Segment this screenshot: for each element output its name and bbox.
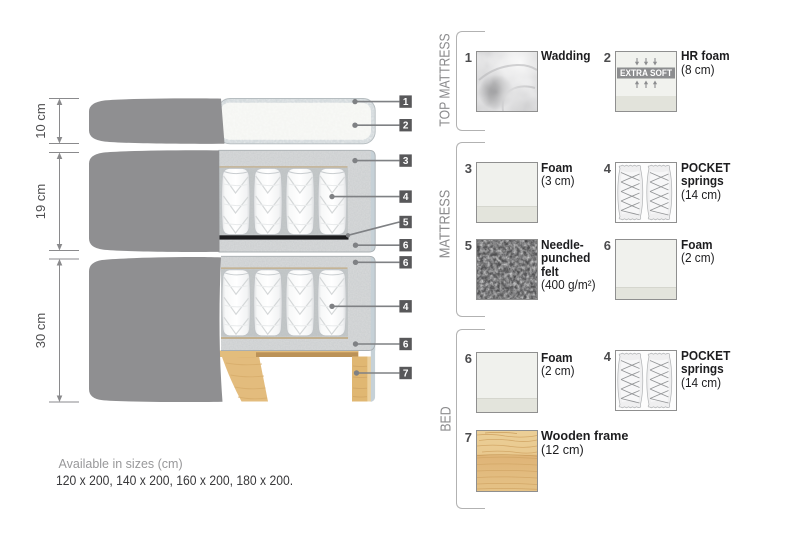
svg-text:6: 6 xyxy=(403,241,409,252)
svg-text:3: 3 xyxy=(403,156,409,167)
svg-text:4: 4 xyxy=(403,302,409,313)
svg-text:EXTRA SOFT: EXTRA SOFT xyxy=(620,68,672,78)
svg-text:10 cm: 10 cm xyxy=(33,103,48,138)
svg-text:6: 6 xyxy=(403,258,409,269)
svg-text:7: 7 xyxy=(403,369,409,380)
svg-text:4: 4 xyxy=(403,192,409,203)
svg-text:2: 2 xyxy=(403,121,409,132)
svg-text:19 cm: 19 cm xyxy=(33,184,48,219)
svg-text:30 cm: 30 cm xyxy=(33,313,48,348)
svg-text:6: 6 xyxy=(403,340,409,351)
svg-text:5: 5 xyxy=(403,218,409,229)
svg-text:1: 1 xyxy=(403,97,409,108)
